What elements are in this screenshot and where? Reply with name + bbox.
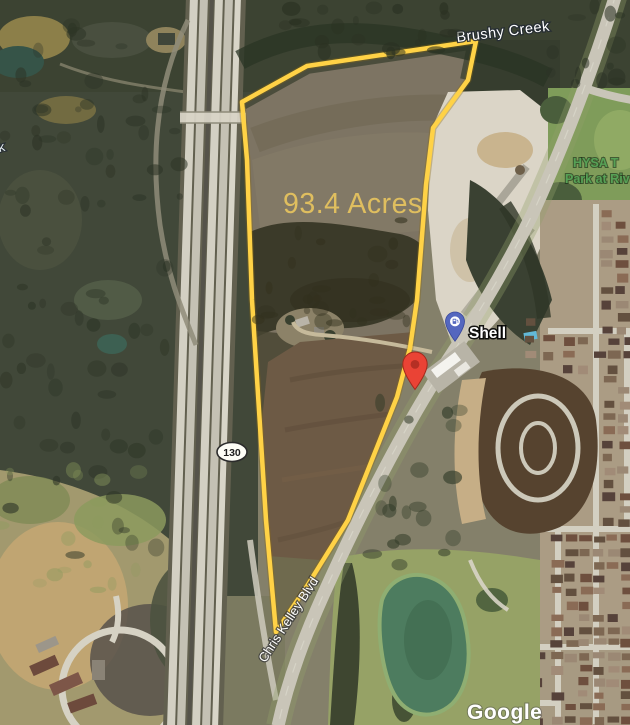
pond-area [328, 549, 540, 725]
gas-station-label: Shell [469, 325, 506, 342]
route-shield-number: 130 [223, 447, 241, 459]
google-logo[interactable]: Google [467, 701, 542, 724]
acreage-label: 93.4 Acres [283, 188, 423, 220]
park-label-line2: Park at Riv [565, 172, 630, 186]
satellite-imagery: 130 Brushy Creek ek 93.4 Acres Shell HYS… [0, 0, 630, 725]
map-viewport[interactable]: 130 Brushy Creek ek 93.4 Acres Shell HYS… [0, 0, 630, 725]
route-shield: 130 [217, 443, 247, 462]
park-label-line1: HYSA T [573, 156, 619, 170]
